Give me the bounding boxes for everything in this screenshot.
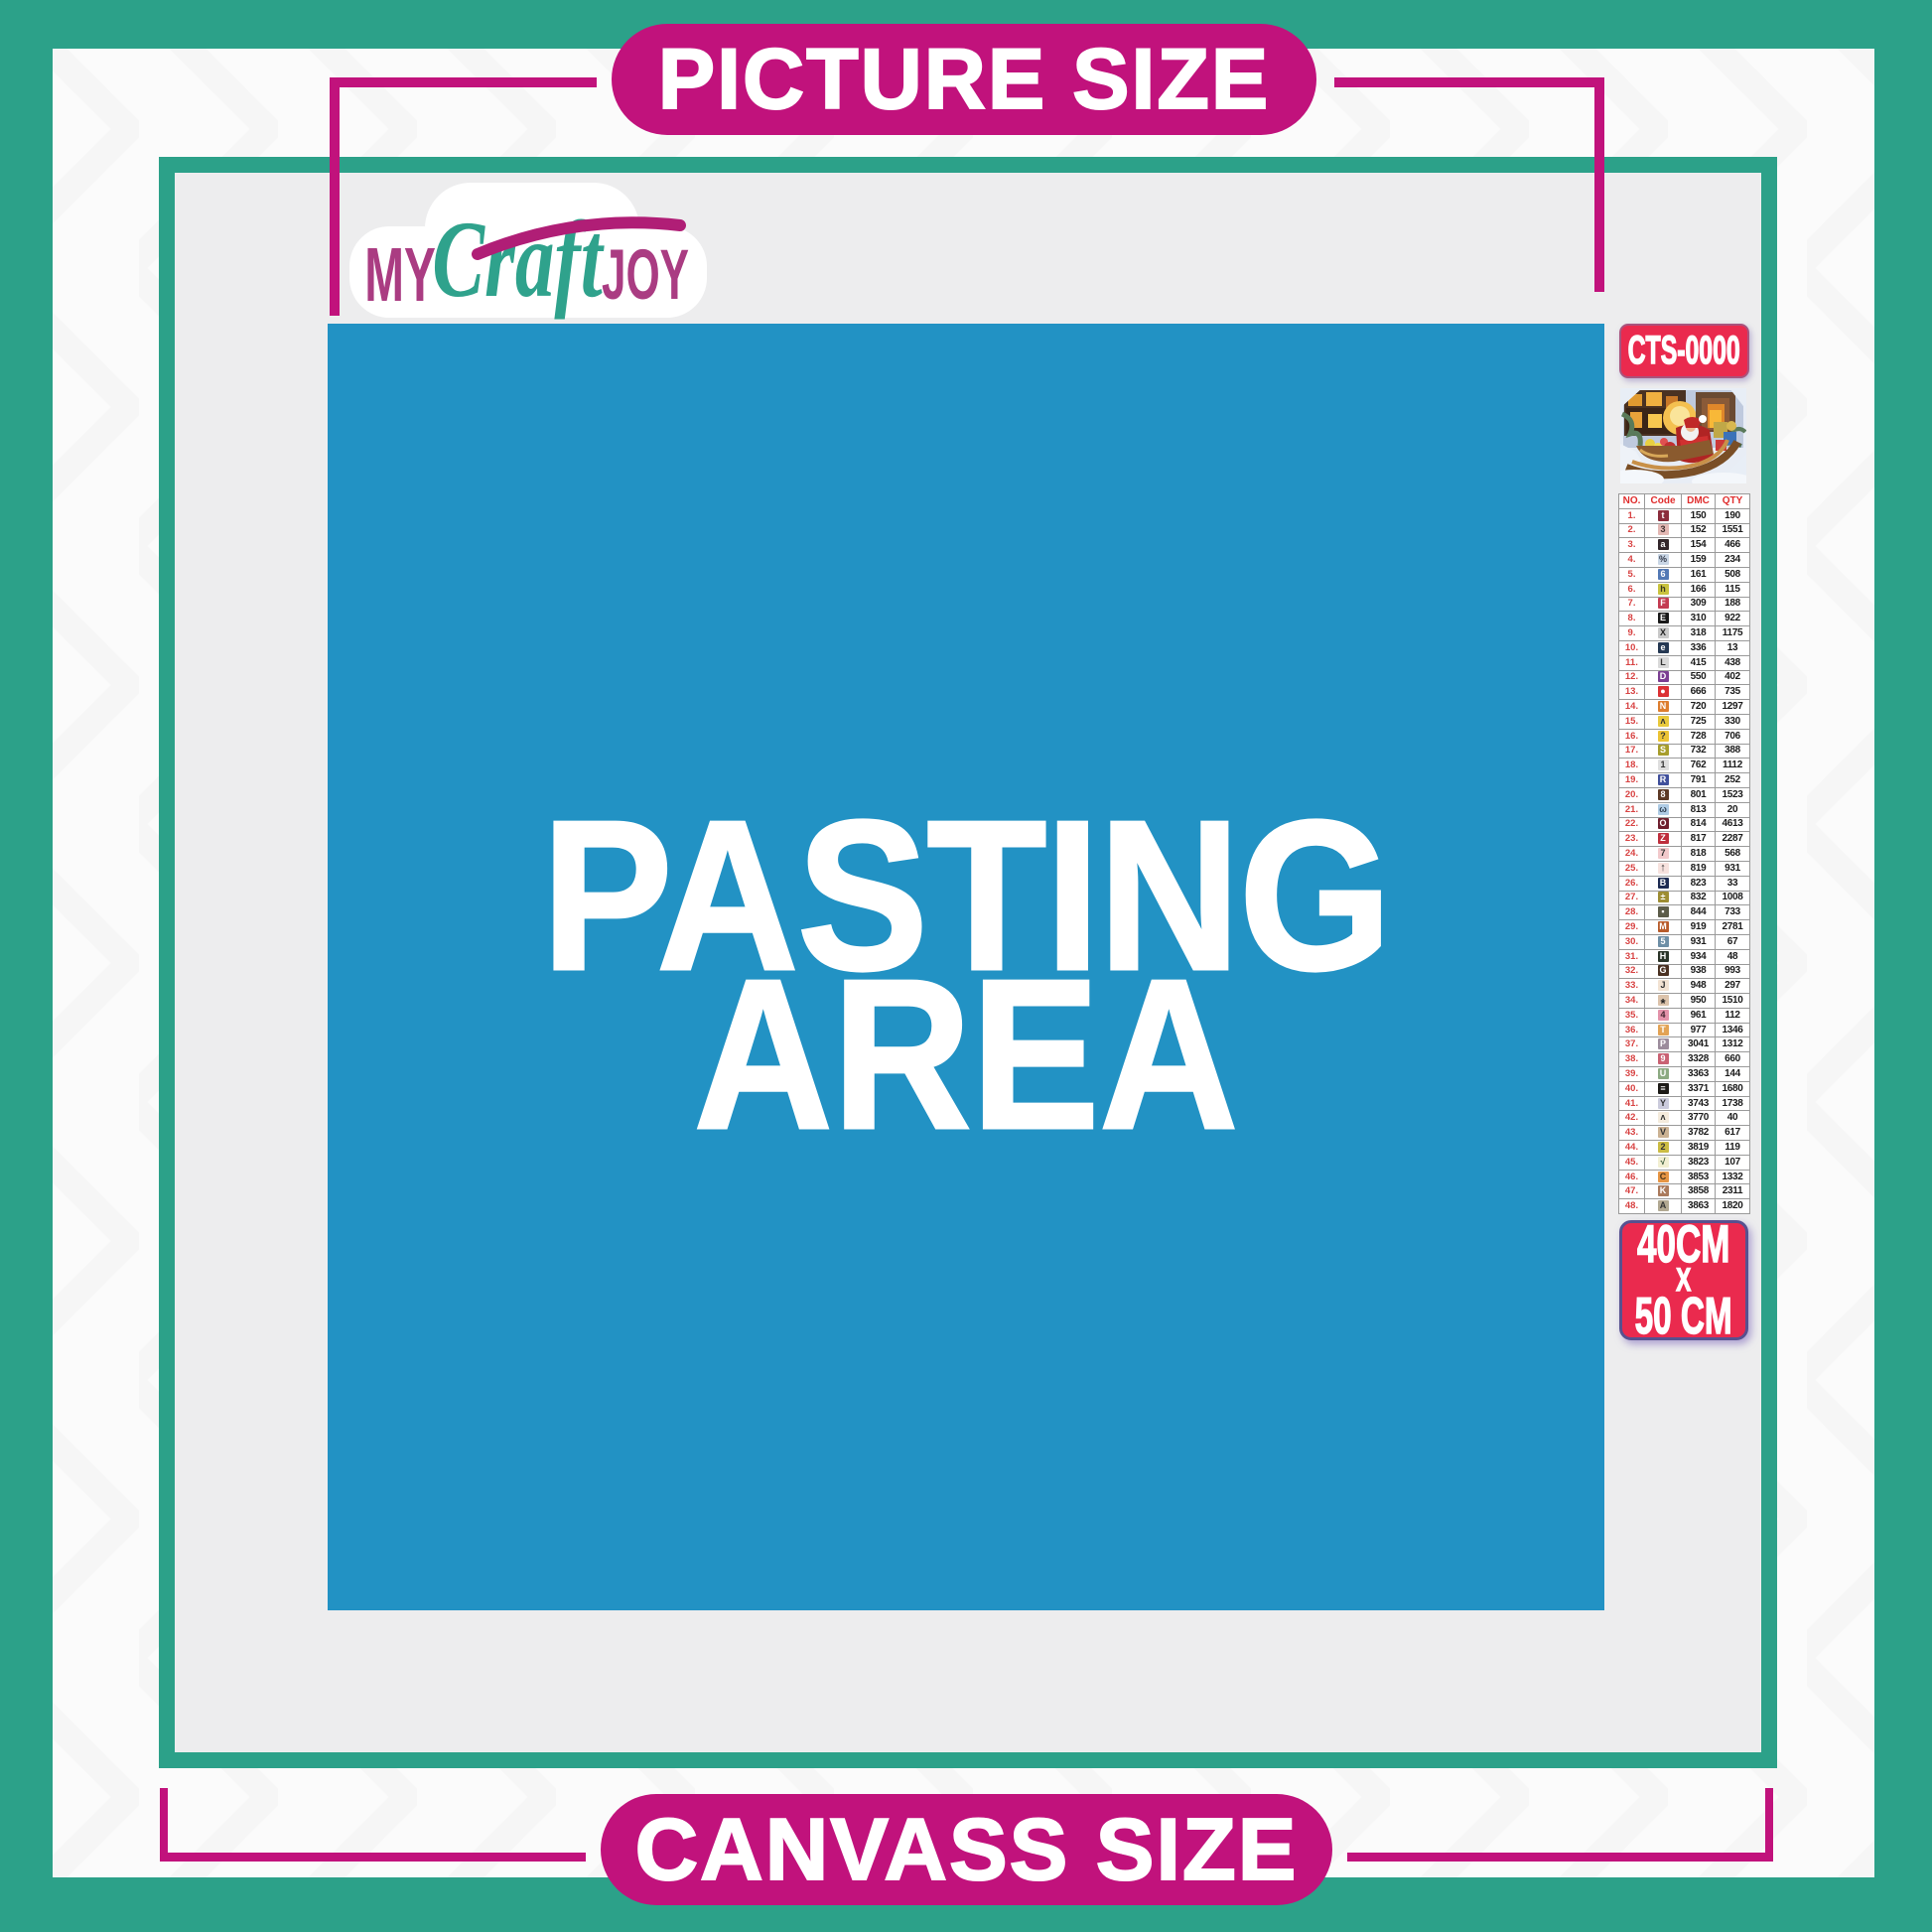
svg-text:JOY: JOY — [602, 235, 689, 314]
svg-text:Craft: Craft — [432, 199, 605, 320]
svg-text:MY: MY — [364, 231, 436, 318]
